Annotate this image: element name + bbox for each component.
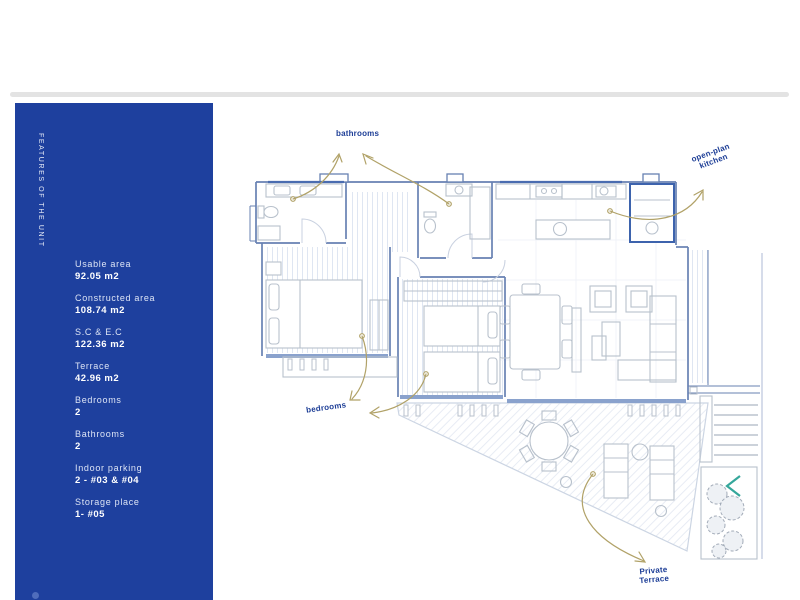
- shower: [258, 226, 280, 240]
- bathroom-1: [258, 184, 342, 240]
- round-table: [530, 422, 568, 460]
- floor-plan-drawing: [0, 0, 800, 600]
- bathroom-2: [424, 184, 490, 239]
- chevron-left-icon: [727, 476, 740, 496]
- double-bed: [266, 280, 362, 348]
- toilet: [425, 219, 436, 233]
- floor-plan: bathrooms open-plan kitchen bedrooms Pri…: [0, 0, 800, 600]
- kitchen: [496, 184, 626, 239]
- closet: [630, 184, 674, 242]
- coffee-table: [602, 322, 620, 356]
- kitchen-island: [536, 220, 610, 239]
- sofa-seat: [618, 360, 676, 380]
- armchair: [590, 286, 616, 312]
- toilet-tank: [258, 206, 264, 218]
- toilet-tank: [424, 212, 436, 217]
- dining-table: [510, 295, 560, 369]
- single-bed: [424, 352, 500, 392]
- planter: [701, 467, 757, 559]
- balcony: [283, 357, 397, 377]
- shower: [470, 187, 490, 239]
- label-bathrooms: bathrooms: [336, 129, 379, 138]
- living-dining: [500, 284, 676, 382]
- armchair: [626, 286, 652, 312]
- single-bed: [424, 306, 500, 346]
- wall-pilasters: [320, 174, 659, 182]
- label-private-terrace: Private Terrace: [638, 565, 669, 586]
- sun-lounger: [650, 446, 674, 500]
- sun-lounger: [604, 444, 628, 498]
- sofa-chaise: [650, 296, 676, 382]
- nightstand: [266, 262, 281, 275]
- toilet: [264, 207, 278, 218]
